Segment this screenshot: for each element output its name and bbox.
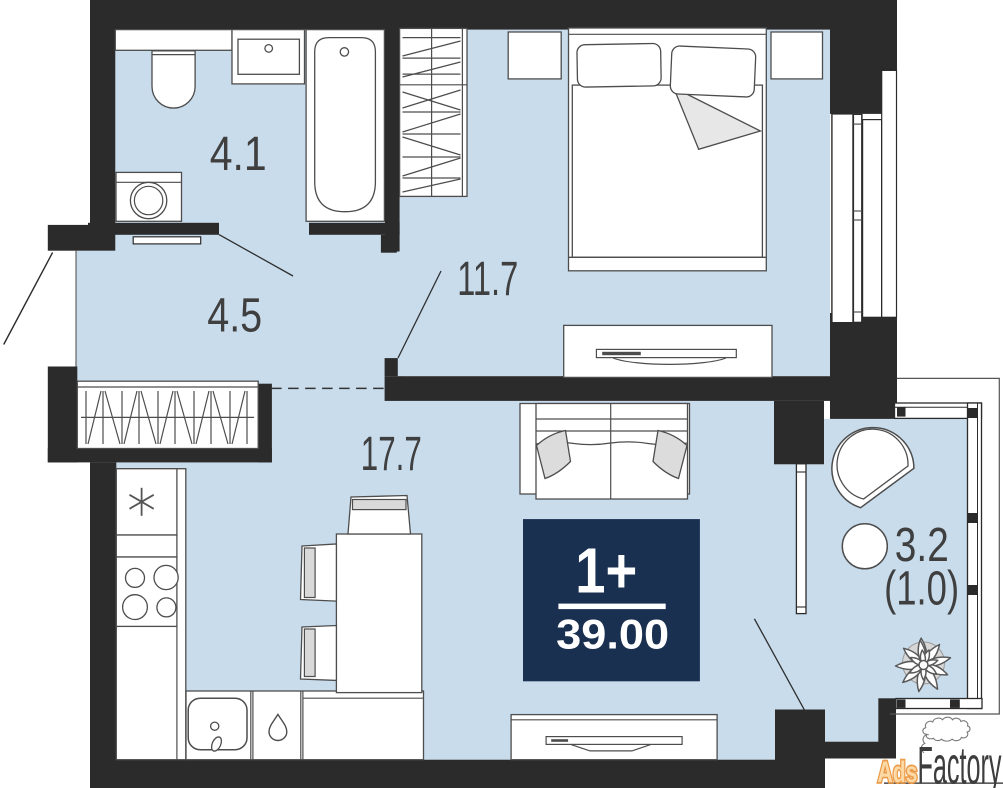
svg-text:4.1: 4.1	[210, 128, 267, 181]
svg-text:4.5: 4.5	[207, 290, 262, 343]
svg-text:1+: 1+	[575, 535, 637, 607]
svg-text:Factory: Factory	[918, 737, 1002, 788]
svg-text:(1.0): (1.0)	[884, 563, 959, 616]
svg-text:Ads: Ads	[878, 756, 918, 788]
svg-text:17.7: 17.7	[361, 428, 422, 481]
svg-text:11.7: 11.7	[457, 253, 518, 306]
svg-text:39.00: 39.00	[556, 611, 669, 658]
